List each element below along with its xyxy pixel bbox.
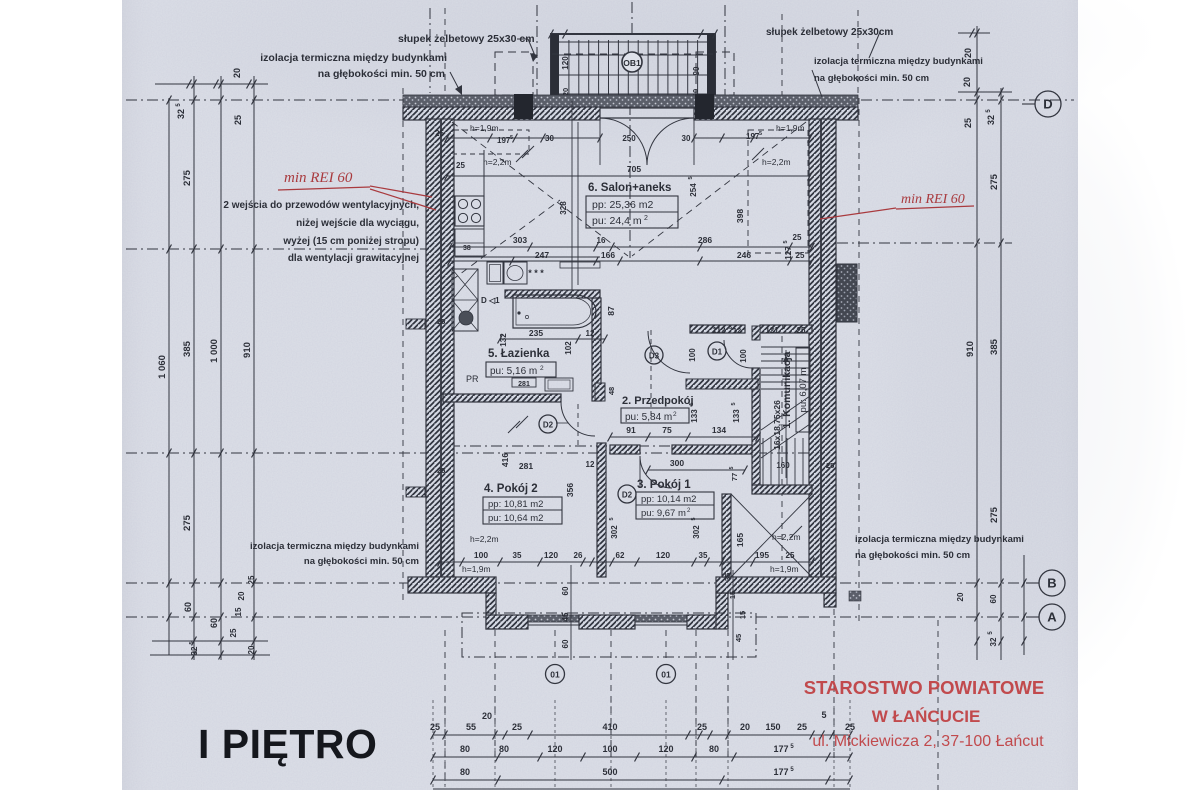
svg-text:h=1,9m: h=1,9m (776, 123, 805, 133)
svg-text:słupek żelbetowy 25x30cm: słupek żelbetowy 25x30cm (766, 27, 893, 38)
svg-text:5: 5 (688, 176, 694, 179)
svg-text:80: 80 (460, 767, 470, 777)
svg-text:h=1,9m: h=1,9m (470, 123, 499, 133)
svg-text:* * *: * * * (528, 268, 544, 278)
svg-text:h=1,9m: h=1,9m (462, 564, 491, 574)
svg-text:D2: D2 (543, 421, 554, 430)
svg-text:133: 133 (732, 409, 741, 423)
svg-text:120: 120 (656, 550, 670, 560)
svg-text:15: 15 (234, 607, 243, 616)
svg-text:25: 25 (233, 115, 243, 125)
svg-text:na głębokości min. 50 cm: na głębokości min. 50 cm (318, 68, 445, 80)
svg-text:h=2,2m: h=2,2m (470, 534, 499, 544)
svg-text:PR: PR (466, 374, 479, 384)
svg-text:na głębokości min. 50 cm: na głębokości min. 50 cm (855, 550, 970, 561)
svg-text:5: 5 (729, 466, 735, 469)
svg-text:20: 20 (740, 722, 750, 732)
svg-text:246: 246 (737, 250, 751, 260)
svg-text:80: 80 (709, 744, 719, 754)
svg-text:45: 45 (561, 612, 570, 621)
svg-text:5: 5 (189, 641, 195, 644)
svg-text:izolacja termiczna między budy: izolacja termiczna między budynkami (855, 534, 1024, 545)
svg-text:45: 45 (734, 634, 743, 642)
svg-text:D1: D1 (712, 348, 723, 357)
svg-text:60: 60 (989, 594, 998, 603)
svg-text:1. Komunikacja: 1. Komunikacja (781, 351, 793, 428)
svg-text:5: 5 (731, 402, 737, 405)
svg-text:pp: 10,81 m2: pp: 10,81 m2 (488, 499, 543, 510)
svg-text:h=2,2m: h=2,2m (772, 532, 801, 542)
svg-text:5: 5 (783, 240, 789, 243)
svg-text:275: 275 (989, 173, 1000, 190)
svg-text:385: 385 (989, 338, 1000, 355)
svg-text:20: 20 (482, 711, 492, 721)
svg-text:416: 416 (500, 453, 510, 467)
svg-text:12: 12 (586, 460, 595, 469)
svg-text:h=2,2m: h=2,2m (762, 157, 791, 167)
svg-text:32: 32 (190, 646, 199, 655)
svg-text:112: 112 (713, 326, 726, 335)
svg-text:60: 60 (183, 602, 193, 612)
svg-text:min REI 60: min REI 60 (284, 170, 353, 186)
svg-text:91: 91 (626, 425, 636, 435)
svg-text:25: 25 (512, 722, 522, 732)
svg-text:25: 25 (963, 118, 973, 128)
svg-text:166: 166 (601, 250, 615, 260)
svg-text:25: 25 (793, 233, 802, 242)
svg-text:5: 5 (821, 710, 826, 720)
svg-text:01: 01 (550, 670, 560, 680)
svg-text:121: 121 (765, 326, 779, 335)
svg-text:D: D (481, 296, 487, 305)
svg-text:pu: 9,67 m: pu: 9,67 m (641, 508, 686, 519)
svg-text:20: 20 (247, 645, 256, 654)
svg-text:25: 25 (796, 251, 805, 260)
svg-text:281: 281 (519, 461, 533, 471)
svg-text:910: 910 (965, 341, 976, 357)
svg-text:4. Pokój 2: 4. Pokój 2 (484, 483, 538, 495)
svg-text:pu: 24,4 m: pu: 24,4 m (592, 215, 642, 227)
svg-text:A: A (1047, 610, 1057, 625)
svg-text:286: 286 (698, 235, 712, 245)
svg-text:5: 5 (782, 325, 785, 331)
svg-text:12: 12 (586, 329, 595, 338)
svg-text:D3: D3 (649, 352, 660, 361)
svg-text:25: 25 (229, 628, 238, 637)
svg-text:na głębokości min. 50 cm: na głębokości min. 50 cm (814, 73, 929, 84)
svg-text:247: 247 (535, 250, 549, 260)
svg-text:2: 2 (644, 215, 648, 222)
svg-text:60: 60 (561, 586, 570, 595)
svg-text:2: 2 (673, 411, 677, 418)
svg-text:izolacja termiczna między budy: izolacja termiczna między budynkami (250, 541, 419, 552)
svg-text:910: 910 (242, 342, 253, 358)
svg-text:35: 35 (723, 573, 732, 581)
svg-text:275: 275 (182, 169, 193, 186)
svg-text:32: 32 (176, 109, 186, 119)
svg-text:87: 87 (606, 306, 616, 316)
svg-text:pu: 10,64 m2: pu: 10,64 m2 (488, 513, 543, 524)
svg-text:35: 35 (513, 551, 522, 560)
svg-text:26: 26 (574, 551, 583, 560)
svg-text:35: 35 (699, 551, 708, 560)
svg-text:398: 398 (735, 209, 745, 223)
svg-text:15: 15 (728, 591, 737, 599)
svg-text:izolacja termiczna między budy: izolacja termiczna między budynkami (260, 52, 447, 64)
svg-text:5: 5 (729, 325, 732, 331)
svg-text:25: 25 (797, 326, 806, 335)
svg-text:197: 197 (497, 136, 511, 145)
svg-text:W ŁAŃCUCIE: W ŁAŃCUCIE (872, 707, 981, 726)
svg-text:102: 102 (564, 341, 573, 355)
svg-text:ul. Mickiewicza 2, 37-100 Łańc: ul. Mickiewicza 2, 37-100 Łańcut (812, 733, 1044, 750)
svg-text:25: 25 (697, 722, 707, 732)
svg-text:na głębokości min. 50 cm: na głębokości min. 50 cm (304, 556, 419, 567)
svg-text:1 000: 1 000 (209, 339, 220, 363)
svg-text:OB1: OB1 (623, 58, 641, 68)
svg-text:55: 55 (466, 722, 476, 732)
svg-text:5: 5 (510, 135, 513, 141)
svg-text:302: 302 (610, 525, 619, 539)
svg-text:60: 60 (561, 639, 570, 648)
svg-text:25: 25 (435, 129, 444, 138)
svg-text:62: 62 (616, 551, 625, 560)
svg-text:25: 25 (430, 722, 440, 732)
svg-text:165: 165 (735, 533, 745, 547)
svg-text:75: 75 (662, 425, 672, 435)
svg-text:D2: D2 (622, 491, 633, 500)
svg-text:wyżej (15 cm poniżej stropu): wyżej (15 cm poniżej stropu) (282, 236, 419, 247)
svg-text:90: 90 (692, 66, 701, 75)
svg-text:281: 281 (518, 381, 530, 388)
svg-text:2. Przedpokój: 2. Przedpokój (622, 395, 694, 407)
svg-text:5. Łazienka: 5. Łazienka (488, 348, 550, 360)
svg-text:01: 01 (661, 670, 671, 680)
svg-text:3. Pokój 1: 3. Pokój 1 (637, 479, 691, 491)
svg-text:150: 150 (765, 722, 780, 732)
svg-text:500: 500 (602, 767, 617, 777)
svg-text:h=1,9m: h=1,9m (770, 564, 799, 574)
svg-text:25: 25 (786, 551, 795, 560)
svg-text:16: 16 (597, 236, 606, 245)
svg-text:195: 195 (755, 550, 769, 560)
svg-text:B: B (1047, 576, 1056, 591)
svg-text:20: 20 (962, 77, 972, 87)
svg-text:132: 132 (499, 333, 508, 347)
svg-text:30: 30 (545, 134, 554, 143)
svg-text:356: 356 (565, 483, 575, 497)
svg-text:pu: 5,84 m: pu: 5,84 m (625, 412, 672, 423)
svg-text:38: 38 (463, 245, 471, 252)
svg-text:410: 410 (602, 722, 617, 732)
svg-text:15: 15 (738, 611, 747, 619)
svg-text:32: 32 (986, 115, 996, 125)
svg-text:30: 30 (682, 134, 691, 143)
svg-text:77: 77 (730, 473, 739, 481)
svg-text:12: 12 (733, 326, 741, 335)
svg-text:300: 300 (670, 458, 684, 468)
svg-text:5: 5 (759, 131, 762, 137)
svg-text:303: 303 (513, 235, 527, 245)
svg-text:254: 254 (689, 183, 698, 197)
svg-text:48: 48 (607, 387, 616, 395)
svg-text:25: 25 (456, 161, 465, 170)
svg-text:pu: 5,16 m: pu: 5,16 m (490, 366, 537, 377)
svg-text:niżej wejście dla wyciągu,: niżej wejście dla wyciągu, (296, 218, 419, 229)
svg-text:275: 275 (989, 506, 1000, 523)
svg-text:1 060: 1 060 (157, 355, 168, 379)
svg-text:◁1: ◁1 (488, 296, 500, 305)
svg-text:6. Salon+aneks: 6. Salon+aneks (588, 182, 671, 194)
svg-text:328: 328 (559, 201, 568, 215)
svg-text:25: 25 (797, 722, 807, 732)
svg-text:100: 100 (739, 349, 748, 363)
svg-text:134: 134 (712, 425, 726, 435)
svg-text:20: 20 (237, 591, 246, 600)
svg-text:705: 705 (627, 164, 641, 174)
svg-text:80: 80 (460, 744, 470, 754)
svg-text:pp: 25,36 m2: pp: 25,36 m2 (592, 199, 653, 211)
svg-text:250: 250 (622, 134, 636, 143)
svg-text:177: 177 (773, 744, 788, 754)
svg-text:120: 120 (544, 550, 558, 560)
svg-text:D: D (1043, 97, 1052, 112)
svg-text:133: 133 (690, 409, 699, 423)
svg-text:h=2,2m: h=2,2m (483, 157, 512, 167)
svg-text:2 wejścia do przewodów wentyla: 2 wejścia do przewodów wentylacyjnych, (223, 200, 419, 211)
svg-text:120: 120 (561, 56, 570, 70)
svg-text:302: 302 (692, 525, 701, 539)
svg-text:I PIĘTRO: I PIĘTRO (198, 721, 377, 767)
svg-text:177: 177 (773, 767, 788, 777)
svg-text:100: 100 (474, 550, 488, 560)
svg-text:60: 60 (209, 618, 219, 628)
svg-text:25: 25 (437, 317, 445, 326)
svg-text:izolacja termiczna między budy: izolacja termiczna między budynkami (814, 56, 983, 67)
svg-text:235: 235 (529, 328, 543, 338)
svg-text:275: 275 (182, 514, 193, 531)
svg-text:5: 5 (609, 517, 615, 520)
svg-text:min REI 60: min REI 60 (901, 192, 965, 207)
svg-text:25: 25 (437, 466, 445, 475)
svg-text:160: 160 (776, 461, 790, 470)
svg-text:385: 385 (182, 340, 193, 357)
svg-text:pp: 10,14 m2: pp: 10,14 m2 (641, 494, 696, 505)
svg-text:20: 20 (232, 68, 242, 78)
svg-text:80: 80 (499, 744, 509, 754)
svg-text:25: 25 (247, 575, 256, 584)
svg-text:20: 20 (956, 592, 965, 601)
svg-text:2: 2 (540, 365, 544, 372)
svg-text:25: 25 (826, 461, 834, 470)
svg-text:pu: 6,07 m: pu: 6,07 m (798, 367, 809, 412)
svg-text:dla wentylacji grawitacyjnej: dla wentylacji grawitacyjnej (288, 253, 419, 264)
svg-text:100: 100 (602, 744, 617, 754)
svg-text:32: 32 (989, 637, 998, 646)
svg-text:STAROSTWO POWIATOWE: STAROSTWO POWIATOWE (804, 677, 1044, 698)
svg-text:100: 100 (688, 348, 697, 362)
svg-text:słupek żelbetowy 25x30 cm: słupek żelbetowy 25x30 cm (398, 33, 535, 45)
